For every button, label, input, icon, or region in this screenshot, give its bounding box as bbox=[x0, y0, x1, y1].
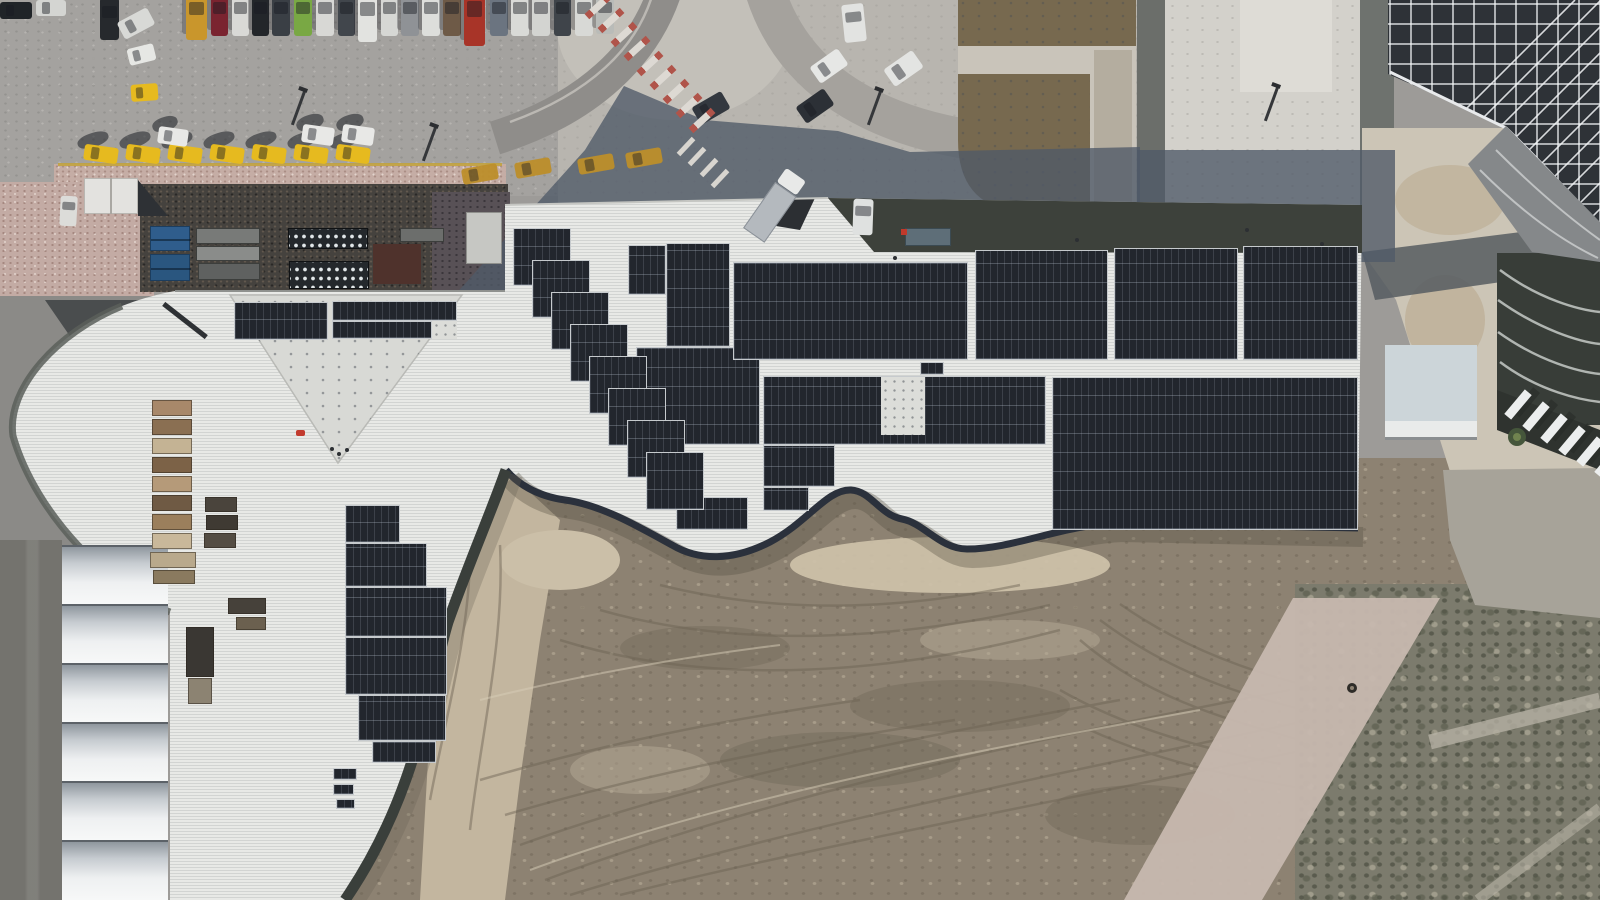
crosswalk-bar bbox=[650, 65, 677, 90]
crosswalk-bar bbox=[611, 22, 638, 47]
crosswalk-bar bbox=[677, 136, 696, 155]
crosswalk-bar bbox=[688, 147, 707, 166]
shade-fin bbox=[1576, 436, 1600, 466]
crosswalk-bar bbox=[663, 79, 690, 104]
pallet-stack bbox=[152, 457, 192, 473]
worker bbox=[1245, 228, 1249, 232]
pallet-stack bbox=[204, 533, 236, 548]
pallet-stack bbox=[188, 678, 212, 704]
pallet-stack bbox=[205, 497, 237, 512]
crosswalk-bar bbox=[598, 8, 625, 33]
lamp-post bbox=[422, 127, 437, 162]
details-layer bbox=[0, 0, 1600, 900]
shade-fin bbox=[1522, 401, 1549, 431]
worker bbox=[1320, 242, 1324, 246]
pallet-stack bbox=[206, 515, 238, 530]
pallet-stack bbox=[228, 598, 266, 614]
worker-red-equipment bbox=[296, 430, 305, 436]
lamp-post bbox=[1264, 87, 1279, 122]
red-marker bbox=[901, 229, 907, 235]
pallet-stack bbox=[153, 570, 195, 584]
pallet-stack bbox=[152, 438, 192, 454]
lamp-post bbox=[291, 91, 306, 126]
crosswalk-bar bbox=[585, 0, 612, 19]
aerial-photo-solar-rooftop bbox=[0, 0, 1600, 900]
worker bbox=[893, 256, 897, 260]
worker bbox=[1075, 238, 1079, 242]
lift-boom bbox=[162, 302, 208, 339]
crosswalk-bar bbox=[676, 93, 703, 118]
lamp-post bbox=[867, 91, 882, 126]
pallet-stack bbox=[152, 514, 192, 530]
crosswalk-bar bbox=[711, 168, 730, 187]
pallet-stack bbox=[152, 476, 192, 492]
pallet-stack bbox=[186, 627, 214, 677]
pallet-stack bbox=[152, 495, 192, 511]
pallet-stack bbox=[152, 419, 192, 435]
worker bbox=[345, 448, 349, 452]
worker bbox=[330, 447, 334, 451]
pallet-stack bbox=[152, 400, 192, 416]
worker bbox=[337, 452, 341, 456]
pallet-stack bbox=[150, 552, 196, 568]
crosswalk-bar bbox=[637, 50, 664, 75]
pallet-stack bbox=[236, 617, 266, 630]
van bbox=[852, 199, 873, 236]
tree-crown bbox=[1513, 433, 1521, 441]
shade-fin bbox=[1558, 425, 1585, 455]
rooftop-container bbox=[905, 228, 951, 246]
pallet-stack bbox=[152, 533, 192, 549]
crosswalk-bar bbox=[689, 107, 716, 132]
shade-fin bbox=[1504, 389, 1531, 419]
crosswalk-bar bbox=[699, 158, 718, 177]
crosswalk-bar bbox=[624, 36, 651, 61]
shade-fin bbox=[1540, 413, 1567, 443]
